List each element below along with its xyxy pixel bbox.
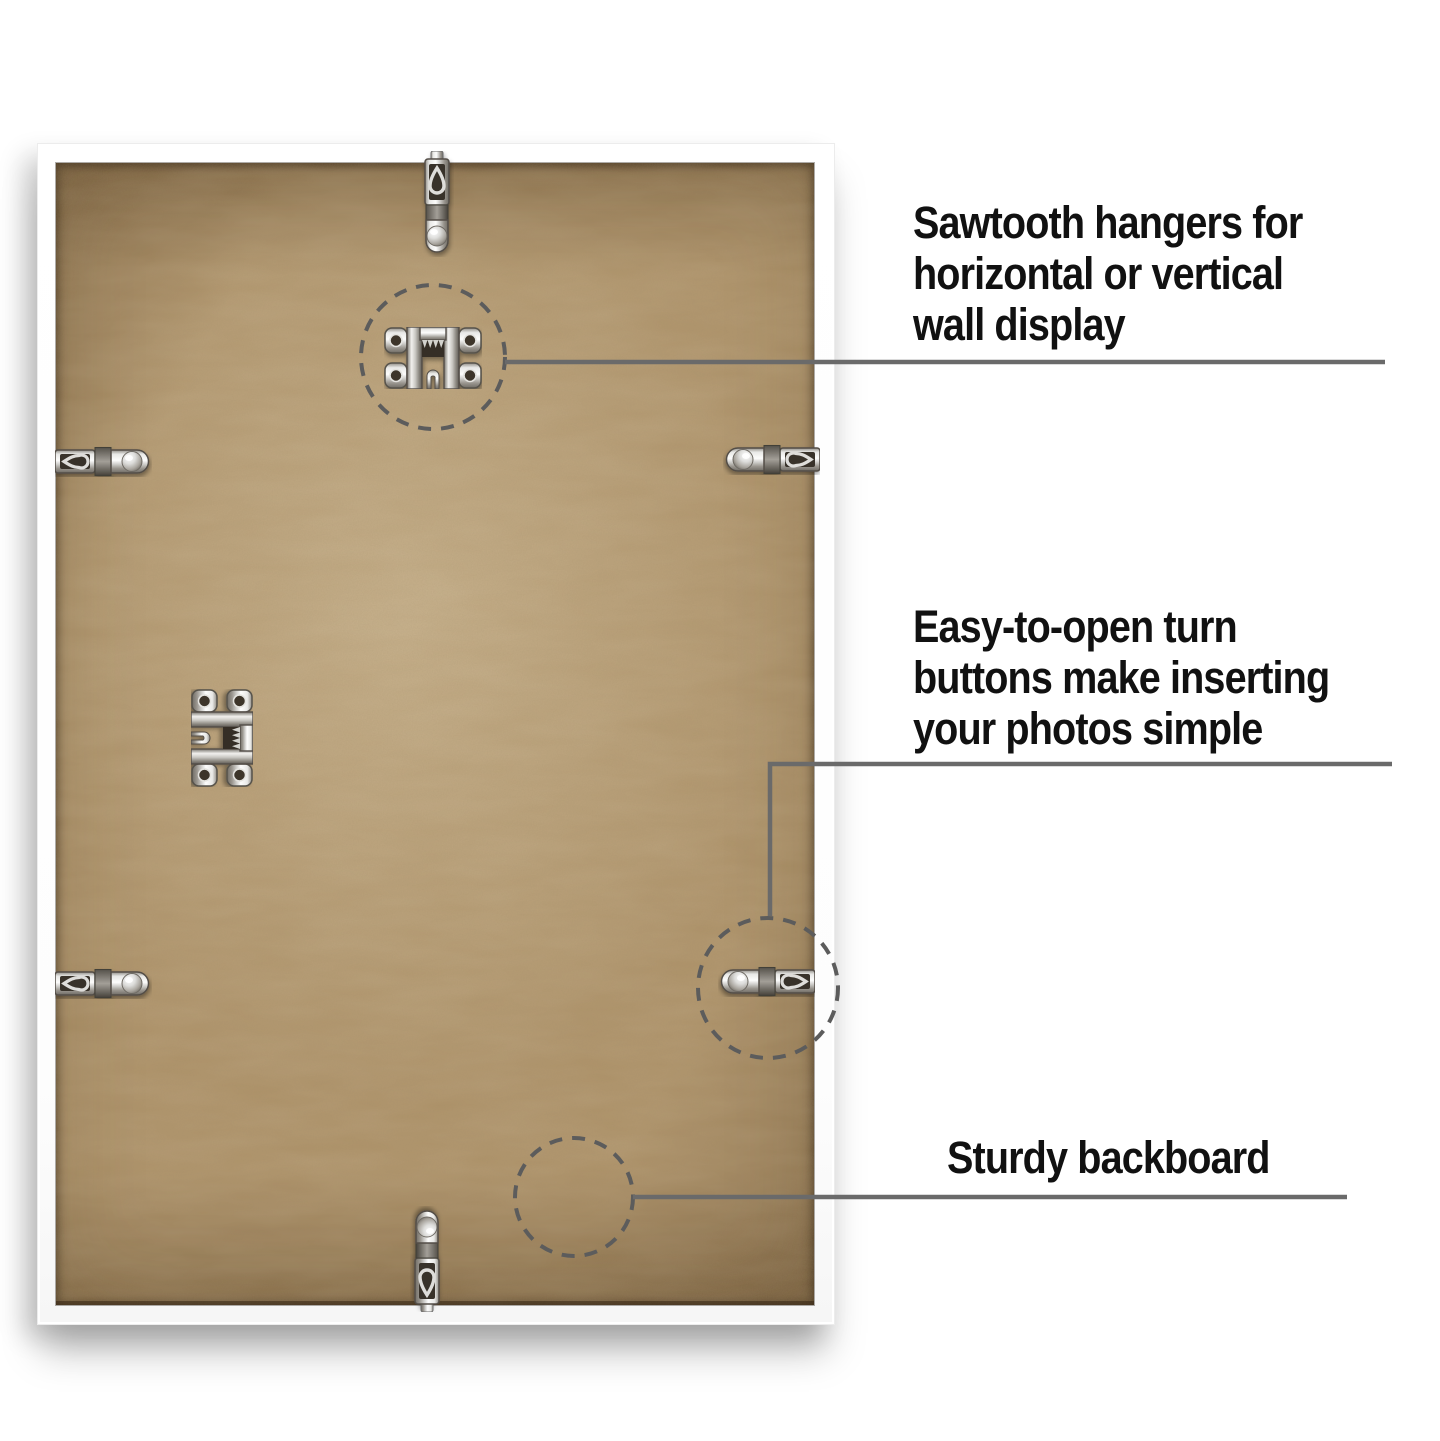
- sawtooth-hanger-icon: [384, 327, 482, 389]
- turn-button-icon: [55, 968, 152, 999]
- annotation-line: wall display: [913, 299, 1302, 350]
- annotation-line: your photos simple: [913, 703, 1329, 754]
- turn-button-icon: [55, 446, 152, 477]
- hanger-tab-icon: [410, 1206, 444, 1312]
- turn-button-icon: [718, 966, 815, 997]
- annotation-line: buttons make inserting: [913, 652, 1329, 703]
- annotation-sawtooth-hangers: Sawtooth hangers for horizontal or verti…: [913, 197, 1302, 350]
- annotation-sturdy-backboard: Sturdy backboard: [947, 1132, 1270, 1183]
- annotation-turn-buttons: Easy-to-open turn buttons make inserting…: [913, 601, 1329, 754]
- leader-line-turn-buttons: [770, 764, 1392, 916]
- annotation-line: Easy-to-open turn: [913, 601, 1329, 652]
- sawtooth-hanger-icon: [191, 689, 253, 787]
- annotation-line: Sawtooth hangers for: [913, 197, 1302, 248]
- turn-button-icon: [723, 444, 820, 475]
- hanger-tab-icon: [420, 151, 454, 257]
- annotation-line: Sturdy backboard: [947, 1132, 1270, 1183]
- product-diagram: Sawtooth hangers for horizontal or verti…: [0, 0, 1440, 1441]
- picture-frame-back: [37, 143, 835, 1325]
- annotation-line: horizontal or vertical: [913, 248, 1302, 299]
